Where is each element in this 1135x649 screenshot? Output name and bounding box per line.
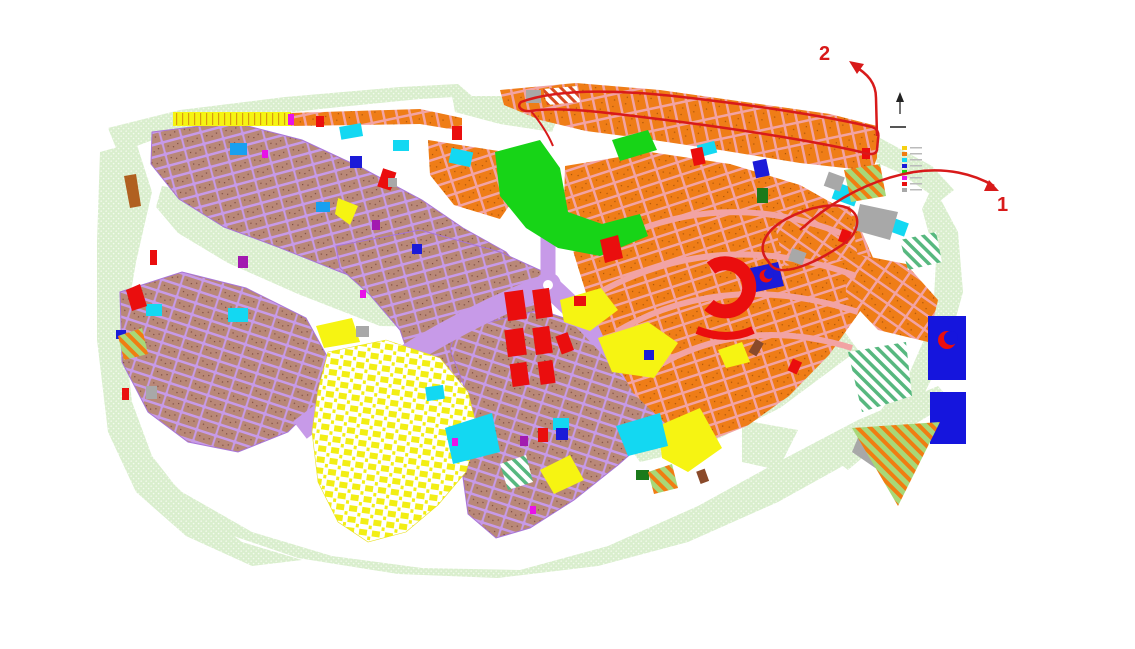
violet-patch-2 — [372, 220, 380, 230]
red-block-spine-5 — [510, 362, 530, 387]
annotation-label-1: 1 — [997, 195, 1008, 215]
cyan-patch-2 — [393, 140, 409, 151]
blue-patch-4 — [412, 244, 422, 254]
azure-patch-1 — [230, 143, 247, 155]
orange-row-mid — [290, 109, 462, 131]
legend-textline-2 — [910, 153, 922, 155]
cyan-patch-4 — [228, 308, 248, 322]
legend-swatch-7 — [902, 182, 907, 186]
brown-strip-3 — [696, 469, 709, 484]
red-patch-11 — [574, 296, 586, 306]
red-patch-14 — [122, 388, 129, 400]
legend-swatch-3 — [902, 158, 907, 162]
legend-swatch-2 — [902, 152, 907, 156]
gray-patch-8 — [388, 178, 397, 187]
north-arrow-head — [896, 92, 904, 102]
legend-swatch-6 — [902, 176, 907, 180]
violet-patch-3 — [520, 436, 528, 446]
gray-patch-5 — [356, 326, 369, 337]
magenta-patch-1 — [288, 114, 294, 125]
zoning-map — [0, 0, 1135, 649]
cyan-patch-5 — [146, 304, 162, 316]
legend-textline-3 — [910, 159, 922, 161]
red-block-spine-3 — [504, 328, 527, 357]
zoning-map-canvas: 2 1 — [0, 0, 1135, 649]
red-patch-8 — [316, 116, 324, 127]
scale-bar — [890, 126, 906, 128]
blue-patch-1 — [350, 156, 362, 168]
legend-textline-8 — [910, 189, 922, 191]
magenta-patch-5 — [530, 506, 536, 514]
red-crescent-inner — [944, 331, 958, 345]
annotation-label-2: 2 — [819, 44, 830, 64]
hatch-orange-4 — [648, 464, 678, 494]
legend-swatch-8 — [902, 188, 907, 192]
cyan-patch-1 — [339, 123, 363, 140]
azure-patch-2 — [316, 202, 330, 212]
legend-swatch-1 — [902, 146, 907, 150]
legend-textline-6 — [910, 177, 922, 179]
legend-swatch-4 — [902, 164, 907, 168]
red-block-spine-1 — [504, 290, 527, 321]
magenta-patch-3 — [360, 290, 366, 298]
red-patch-10 — [538, 428, 548, 442]
legend-textline-4 — [910, 165, 922, 167]
magenta-patch-4 — [452, 438, 458, 446]
legend-textline-1 — [910, 147, 922, 149]
hatch-orange-1 — [852, 422, 940, 506]
yellow-strip-top — [173, 112, 291, 126]
legend-textline-7 — [910, 183, 922, 185]
darkgreen-patch-2 — [636, 470, 649, 480]
blue-patch-5 — [644, 350, 654, 360]
red-patch-2 — [452, 126, 462, 140]
red-block-spine-6 — [538, 360, 556, 385]
magenta-patch-2 — [262, 150, 268, 158]
hatch-green-2 — [900, 232, 942, 270]
red-patch-7 — [150, 250, 157, 265]
yellow-patch-4 — [316, 318, 360, 348]
darkgreen-patch-1 — [757, 188, 768, 203]
hospital-block-small — [930, 392, 966, 444]
blue-patch-3 — [556, 428, 568, 440]
hatch-orange-2 — [844, 164, 886, 202]
cyan-patch-12 — [425, 385, 445, 401]
violet-patch-1 — [238, 256, 248, 268]
crescent-fan-inner — [764, 269, 774, 279]
gray-patch-6 — [146, 386, 157, 399]
